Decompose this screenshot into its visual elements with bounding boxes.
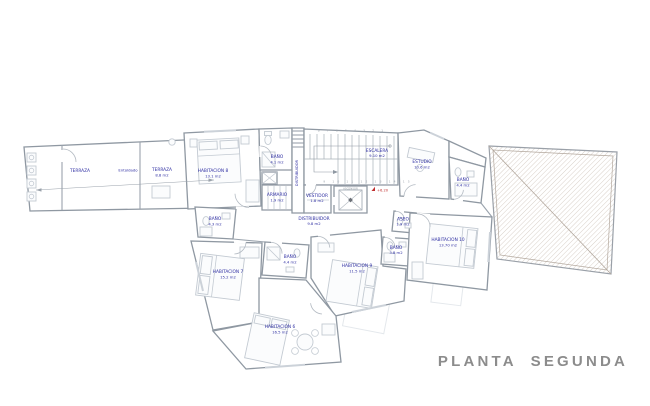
room-label-terraza-strip: TERRAZA	[69, 168, 90, 174]
elevator-label: ASCENSOR	[343, 186, 358, 190]
stair-numbers-bottom: 9 10 11 12 13 14 15	[323, 180, 412, 184]
room-area-armario: 1.9 m2	[270, 198, 284, 203]
roof-hatch	[489, 146, 617, 274]
room-area-banyo-38: 3.8 m2	[389, 250, 403, 255]
room-area-estudio: 10.6 m2	[414, 165, 430, 170]
room-area-escalera: 9.10 m2	[369, 153, 385, 158]
level-marker: +6.20	[372, 187, 389, 193]
room-area-banyo-43: 4.3 m2	[208, 222, 222, 227]
room-area-aseo: 1.9 m2	[396, 222, 410, 227]
stair-numbers-top: 8 7 6 5 4 3 2 1	[318, 129, 386, 133]
room-area-banyo-41: 4.1 m2	[270, 160, 284, 165]
room-area-habitacion-7: 15.2 m2	[220, 275, 236, 280]
room-area-habitacion-6: 16.5 m2	[272, 330, 288, 335]
room-area-habitacion-9: 11.5 m2	[349, 269, 365, 274]
room-area-banyo-44-top: 4.4 m2	[456, 183, 470, 188]
room-area-habitacion-8: 13.1 m2	[205, 174, 221, 179]
floor-plan-canvas: +6.20 TERRAZA Entoldado TERRAZA 8.8 m2 H…	[0, 0, 650, 406]
level-mark-text: +6.20	[377, 189, 389, 193]
room-area-vestidor: 1.8 m2	[310, 198, 324, 203]
room-area-banyo-44-mid: 4.4 m2	[283, 260, 297, 265]
room-area-habitacion-10: 13.70 m2	[439, 243, 458, 248]
drawing-title: PLANTA SEGUNDA	[438, 353, 628, 370]
room-area-distribuidor: 9.8 m2	[307, 221, 321, 226]
room-area-terraza: 8.8 m2	[155, 173, 169, 178]
room-label-distribuidor-vertical: DISTRIBUIDOR	[295, 159, 299, 186]
deck-note: Entoldado	[118, 168, 138, 173]
